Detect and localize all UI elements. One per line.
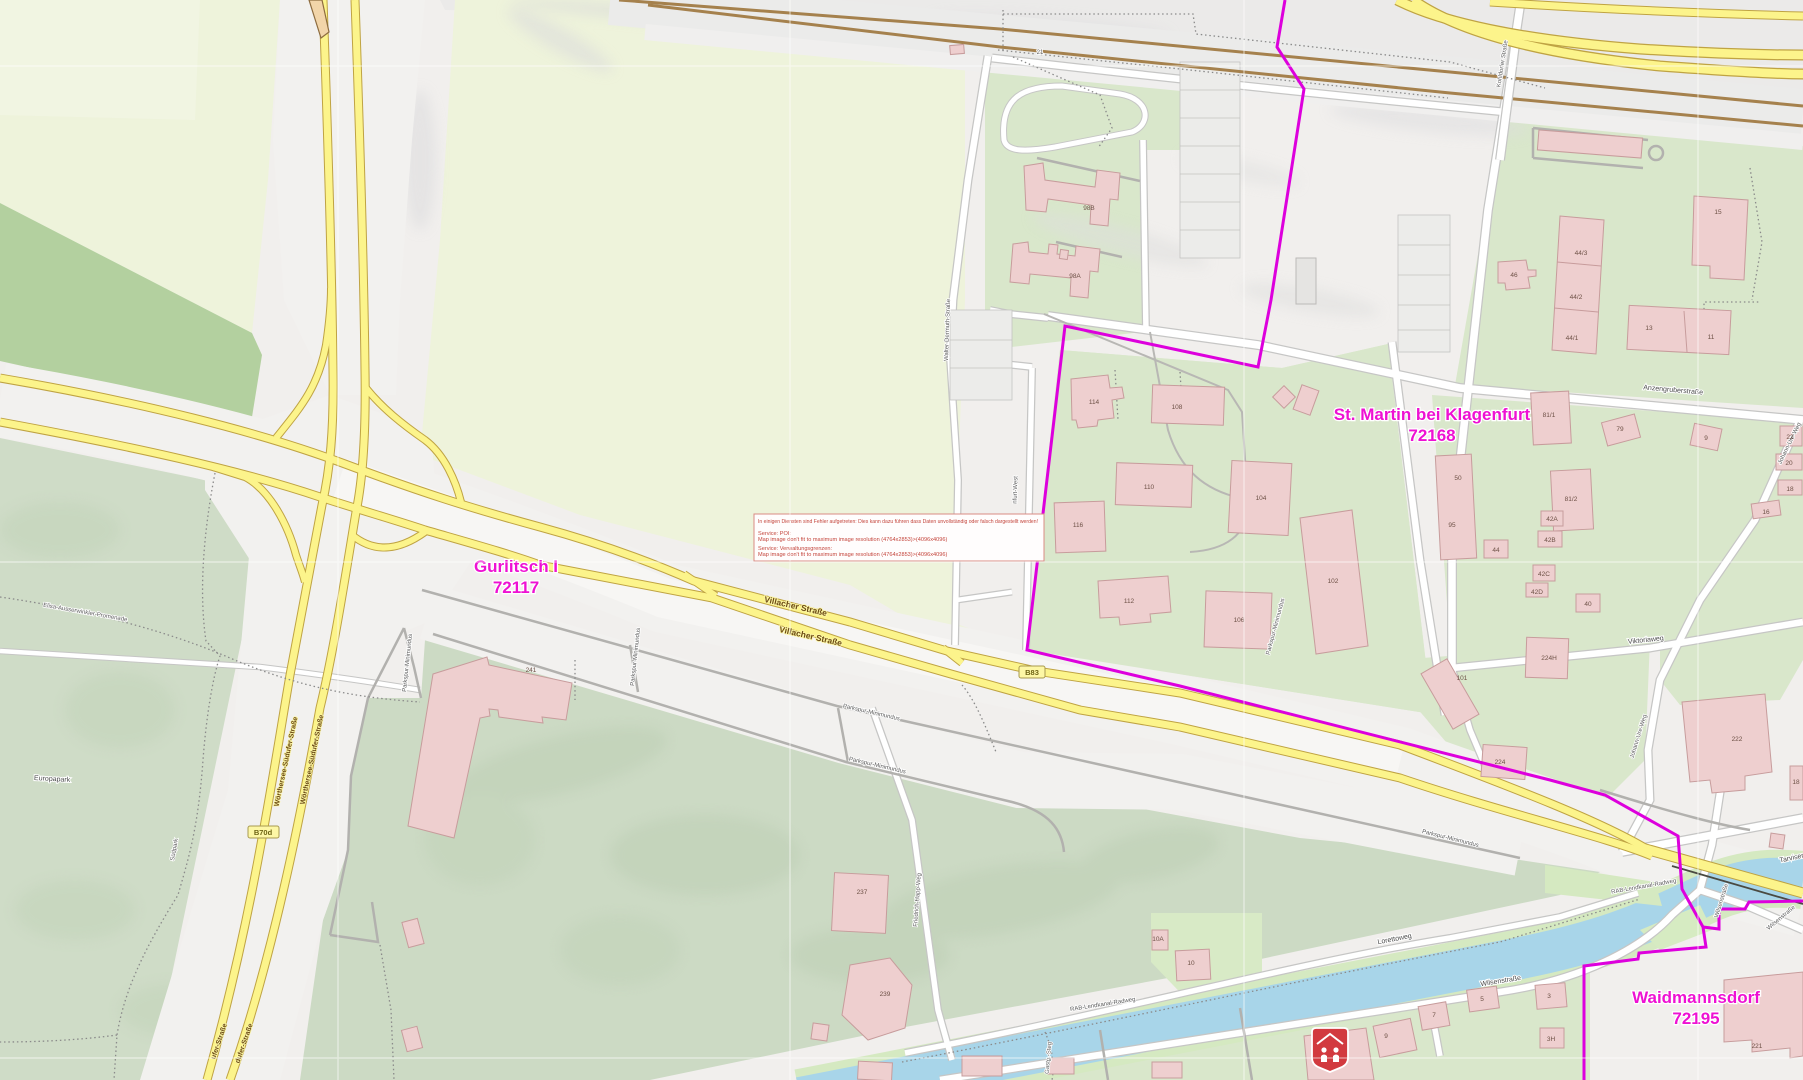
svg-text:112: 112 (1124, 598, 1135, 605)
svg-text:221: 221 (1752, 1043, 1763, 1050)
svg-text:18: 18 (1792, 779, 1800, 786)
svg-text:44/1: 44/1 (1566, 335, 1579, 342)
svg-text:Gurlitsch I: Gurlitsch I (474, 557, 558, 576)
svg-text:50: 50 (1454, 475, 1462, 482)
svg-text:10: 10 (1187, 960, 1195, 967)
svg-text:42C: 42C (1538, 571, 1550, 578)
svg-text:108: 108 (1172, 404, 1183, 411)
svg-text:79: 79 (1616, 426, 1624, 433)
svg-text:22: 22 (1786, 434, 1794, 441)
svg-text:20: 20 (1785, 460, 1793, 467)
svg-text:42B: 42B (1544, 537, 1556, 544)
svg-text:St. Martin bei Klagenfurt: St. Martin bei Klagenfurt (1334, 405, 1531, 424)
svg-text:224: 224 (1495, 759, 1506, 766)
svg-text:44/3: 44/3 (1575, 250, 1588, 257)
svg-text:116: 116 (1073, 522, 1084, 529)
svg-text:104: 104 (1256, 495, 1267, 502)
svg-text:B83: B83 (1025, 668, 1039, 677)
svg-text:Map image don't fit to maximum: Map image don't fit to maximum image res… (758, 537, 947, 543)
svg-text:241: 241 (526, 667, 537, 674)
svg-text:239: 239 (880, 991, 891, 998)
svg-text:Map image don't fit to maximum: Map image don't fit to maximum image res… (758, 552, 947, 558)
svg-text:42A: 42A (1546, 516, 1558, 523)
svg-text:237: 237 (857, 889, 868, 896)
svg-text:7: 7 (1432, 1012, 1436, 1019)
svg-text:72117: 72117 (493, 578, 539, 597)
svg-text:B70d: B70d (254, 828, 273, 837)
svg-text:72168: 72168 (1408, 426, 1455, 445)
svg-text:222: 222 (1732, 736, 1743, 743)
svg-text:13: 13 (1645, 325, 1653, 332)
svg-text:110: 110 (1144, 484, 1155, 491)
svg-text:11: 11 (1708, 334, 1715, 341)
svg-text:42D: 42D (1531, 589, 1543, 596)
svg-text:95: 95 (1448, 522, 1456, 529)
svg-text:106: 106 (1234, 617, 1245, 624)
svg-text:81/1: 81/1 (1543, 412, 1556, 419)
svg-text:81/2: 81/2 (1565, 496, 1578, 503)
svg-text:21: 21 (1037, 50, 1044, 56)
svg-text:9: 9 (1384, 1033, 1388, 1040)
svg-text:nfurt-West: nfurt-West (1013, 476, 1020, 504)
svg-text:10A: 10A (1152, 936, 1164, 943)
svg-text:3H: 3H (1547, 1036, 1556, 1043)
svg-text:98A: 98A (1069, 273, 1081, 280)
svg-text:98B: 98B (1083, 205, 1095, 212)
svg-text:18: 18 (1786, 486, 1794, 493)
svg-text:9: 9 (1704, 435, 1708, 442)
svg-text:72195: 72195 (1672, 1009, 1719, 1028)
svg-text:102: 102 (1328, 578, 1339, 585)
svg-text:Waidmannsdorf: Waidmannsdorf (1632, 988, 1760, 1007)
svg-text:16: 16 (1762, 509, 1770, 516)
svg-text:46: 46 (1510, 272, 1518, 279)
svg-text:224H: 224H (1541, 655, 1557, 662)
svg-text:44/2: 44/2 (1570, 294, 1583, 301)
svg-text:3: 3 (1547, 993, 1551, 1000)
svg-text:40: 40 (1584, 601, 1592, 608)
svg-text:In einigen Diensten sind Fehle: In einigen Diensten sind Fehler aufgetre… (758, 519, 1038, 525)
svg-text:101: 101 (1457, 675, 1468, 682)
svg-text:5: 5 (1480, 996, 1484, 1003)
svg-text:15: 15 (1714, 209, 1722, 216)
svg-text:44: 44 (1492, 547, 1500, 554)
svg-text:114: 114 (1089, 399, 1100, 406)
